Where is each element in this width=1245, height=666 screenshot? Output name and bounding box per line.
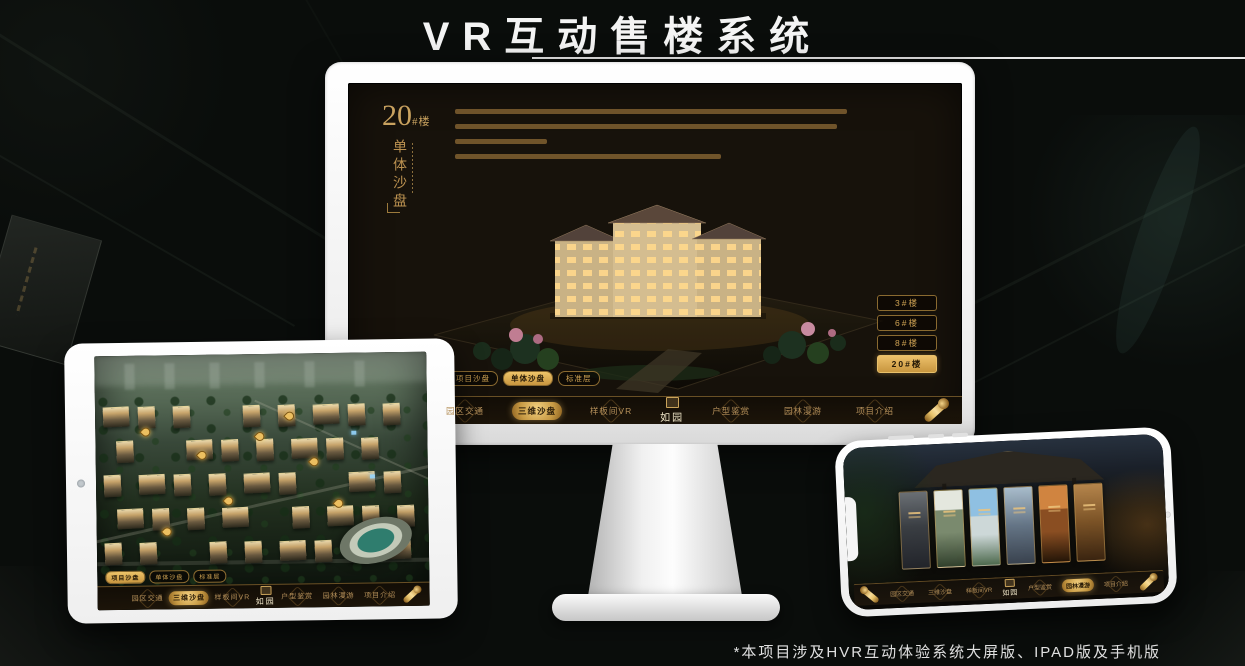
floor-button-3[interactable]: 3#楼: [877, 295, 937, 311]
gallery-card[interactable]: [1073, 483, 1106, 562]
map-marker-icon[interactable]: [351, 431, 356, 435]
masterplan-building[interactable]: [105, 544, 123, 566]
masterplan-building[interactable]: [292, 507, 310, 529]
background-river-photo: [1025, 115, 1245, 370]
tablet-view-tab-group: 项目沙盘 单体沙盘 标准层: [105, 569, 226, 584]
masterplan-building[interactable]: [361, 438, 379, 460]
distant-tower: [354, 361, 364, 387]
nav-item-showroom-vr[interactable]: 样板间VR: [962, 583, 997, 598]
nav-item-unit-gallery[interactable]: 户型鉴赏: [277, 589, 317, 604]
tab-project-sandtable[interactable]: 项目沙盘: [105, 571, 145, 585]
masterplan-building[interactable]: [221, 440, 239, 462]
phone-device: 园区交通 三维沙盘 样板间VR 如园 户型鉴赏 园林漫游 项目介绍: [834, 426, 1178, 617]
tab-single-building[interactable]: 单体沙盘: [149, 570, 189, 584]
gallery-card[interactable]: [1003, 486, 1036, 565]
app-logo: 如园: [256, 586, 276, 607]
masterplan-building[interactable]: [139, 475, 166, 495]
nav-item-traffic[interactable]: 园区交通: [128, 591, 168, 606]
masterplan-building[interactable]: [174, 475, 192, 497]
masterplan-building[interactable]: [384, 472, 402, 494]
text-line: [455, 139, 547, 144]
building-heading: 20#楼: [382, 101, 431, 137]
masterplan-building[interactable]: [313, 404, 340, 424]
building-subtitle: 单体沙盘: [388, 139, 408, 211]
masterplan-building[interactable]: [256, 440, 274, 462]
scene-gallery: [898, 483, 1105, 570]
nav-item-unit-gallery[interactable]: 户型鉴赏: [1024, 580, 1057, 594]
masterplan-building[interactable]: [244, 542, 262, 564]
masterplan-building[interactable]: [222, 508, 249, 528]
masterplan-building[interactable]: [104, 476, 122, 498]
poster-canvas: VR互动售楼系统 20#楼 单体沙盘: [0, 0, 1245, 666]
masterplan-building[interactable]: [117, 509, 144, 529]
masterplan-building[interactable]: [383, 404, 401, 426]
nav-item-showroom-vr[interactable]: 样板间VR: [584, 402, 638, 420]
nav-item-project-intro[interactable]: 项目介绍: [360, 588, 400, 603]
gallery-card[interactable]: [898, 491, 931, 570]
floor-button-6[interactable]: 6#楼: [877, 315, 937, 331]
masterplan-building[interactable]: [116, 441, 134, 463]
app-logo: 如园: [660, 397, 684, 424]
page-title: VR互动售楼系统: [0, 4, 1245, 62]
footnote: *本项目涉及HVR互动体验系统大屏版、IPAD版及手机版: [734, 641, 1161, 662]
tablet-device: 项目沙盘 单体沙盘 标准层 园区交通 三维沙盘 样板间VR 如园 户型鉴赏 园林…: [64, 338, 458, 623]
floor-button-group: 3#楼 6#楼 8#楼 20#楼: [877, 295, 937, 373]
scroll-icon[interactable]: [861, 586, 880, 603]
nav-item-showroom-vr[interactable]: 样板间VR: [210, 590, 254, 605]
phone-volume-button: [928, 434, 944, 439]
masterplan-building[interactable]: [138, 407, 156, 429]
floor-button-20[interactable]: 20#楼: [877, 355, 937, 373]
masterplan-building[interactable]: [327, 506, 354, 526]
nav-item-unit-gallery[interactable]: 户型鉴赏: [706, 402, 756, 420]
nav-item-project-intro[interactable]: 项目介绍: [1100, 576, 1133, 590]
building-3d-render[interactable]: [420, 163, 890, 393]
title-underline: [532, 57, 1245, 59]
building-number: 20: [382, 99, 412, 132]
gallery-card[interactable]: [933, 489, 966, 568]
phone-power-button: [952, 433, 968, 438]
text-line: [455, 124, 837, 129]
tablet-screen: 项目沙盘 单体沙盘 标准层 园区交通 三维沙盘 样板间VR 如园 户型鉴赏 园林…: [94, 352, 430, 611]
nav-item-garden-roam[interactable]: 园林漫游: [319, 588, 359, 603]
nav-item-3d-sandtable[interactable]: 三维沙盘: [512, 402, 562, 420]
masterplan-building[interactable]: [279, 473, 297, 495]
scroll-icon[interactable]: [402, 585, 421, 603]
description-paragraph: [455, 109, 847, 169]
floor-button-8[interactable]: 8#楼: [877, 335, 937, 351]
building-number-suffix: #楼: [412, 116, 431, 128]
text-line: [455, 109, 847, 114]
nav-item-3d-sandtable[interactable]: 三维沙盘: [924, 584, 957, 598]
scroll-icon[interactable]: [923, 398, 949, 423]
masterplan-building[interactable]: [209, 542, 227, 564]
tablet-camera-icon: [77, 479, 85, 487]
nav-item-project-intro[interactable]: 项目介绍: [850, 402, 900, 420]
masterplan-building[interactable]: [209, 474, 227, 496]
masterplan-building[interactable]: [187, 509, 205, 531]
subtitle-corner-bracket: [387, 203, 400, 213]
distant-tower: [124, 364, 134, 390]
tab-single-building[interactable]: 单体沙盘: [503, 371, 553, 386]
masterplan-building[interactable]: [173, 407, 191, 429]
distant-tower: [164, 363, 174, 389]
tablet-nav-bar: 园区交通 三维沙盘 样板间VR 如园 户型鉴赏 园林漫游 项目介绍: [97, 582, 429, 611]
masterplan-building[interactable]: [140, 543, 158, 565]
gallery-card[interactable]: [1038, 484, 1071, 563]
seal-icon: [1005, 579, 1015, 587]
text-line: [455, 154, 721, 159]
view-tab-group: 项目沙盘 单体沙盘 标准层: [448, 371, 600, 386]
subtitle-divider: [412, 143, 413, 193]
masterplan-building[interactable]: [243, 406, 261, 428]
masterplan-building[interactable]: [280, 541, 307, 561]
tab-project-sandtable[interactable]: 项目沙盘: [448, 371, 498, 386]
masterplan-building[interactable]: [314, 541, 332, 563]
monitor-stand-neck: [588, 444, 742, 596]
gallery-card[interactable]: [968, 487, 1001, 566]
masterplan-building[interactable]: [348, 404, 366, 426]
tab-standard-floor[interactable]: 标准层: [193, 569, 226, 582]
seal-icon: [666, 397, 679, 408]
nav-item-garden-roam[interactable]: 园林漫游: [778, 402, 828, 420]
tab-standard-floor[interactable]: 标准层: [558, 371, 600, 386]
nav-item-traffic[interactable]: 园区交通: [886, 586, 919, 600]
nav-item-3d-sandtable[interactable]: 三维沙盘: [169, 590, 209, 605]
phone-screen: 园区交通 三维沙盘 样板间VR 如园 户型鉴赏 园林漫游 项目介绍: [842, 434, 1169, 610]
distant-tower: [254, 362, 264, 388]
masterplan-building[interactable]: [326, 439, 344, 461]
phone-volume-button: [888, 435, 914, 440]
scroll-icon[interactable]: [1139, 573, 1157, 591]
distant-tower: [304, 361, 314, 387]
nav-item-garden-roam[interactable]: 园林漫游: [1062, 578, 1095, 592]
seal-icon: [260, 586, 271, 595]
distant-tower: [209, 363, 219, 389]
masterplan-building[interactable]: [103, 407, 130, 427]
masterplan-building[interactable]: [244, 473, 271, 493]
monitor-stand-base: [552, 594, 780, 621]
app-logo: 如园: [1002, 579, 1019, 599]
map-marker-icon[interactable]: [370, 474, 375, 478]
